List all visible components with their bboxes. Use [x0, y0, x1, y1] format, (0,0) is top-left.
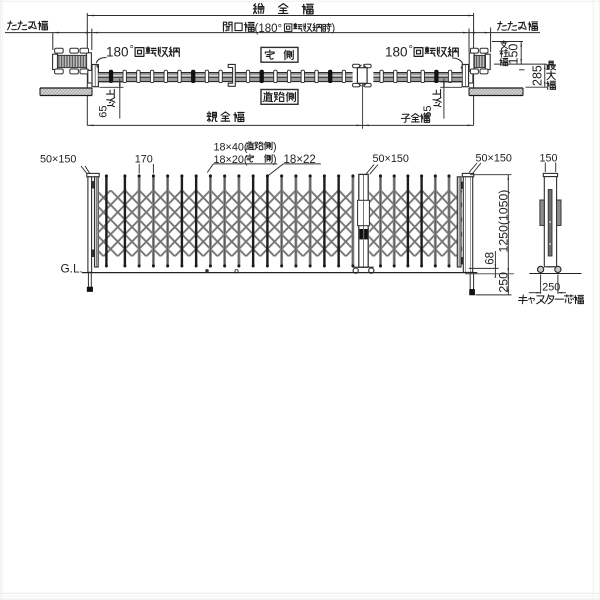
svg-text:°: ° — [409, 44, 413, 56]
svg-text:): ) — [332, 22, 336, 34]
svg-text:): ) — [273, 141, 277, 153]
svg-text:170: 170 — [135, 153, 153, 165]
svg-text:65: 65 — [98, 105, 110, 117]
svg-text:18×40(: 18×40( — [214, 141, 248, 153]
svg-text:150: 150 — [540, 152, 558, 164]
svg-text:50×150: 50×150 — [40, 153, 76, 165]
svg-text:G.L.: G.L. — [61, 261, 83, 275]
svg-text:°: ° — [130, 44, 134, 56]
svg-text:180: 180 — [106, 45, 129, 60]
svg-text:250: 250 — [497, 272, 511, 293]
svg-text:68: 68 — [485, 252, 497, 265]
svg-text:150: 150 — [507, 44, 521, 65]
svg-text:285: 285 — [531, 65, 545, 86]
svg-text:1250(1050): 1250(1050) — [497, 190, 511, 253]
svg-text:180: 180 — [385, 45, 408, 60]
svg-text:250: 250 — [542, 282, 560, 294]
svg-text:50×150: 50×150 — [373, 153, 409, 165]
svg-text:50×150: 50×150 — [476, 152, 512, 164]
svg-text:(180°: (180° — [255, 23, 283, 35]
